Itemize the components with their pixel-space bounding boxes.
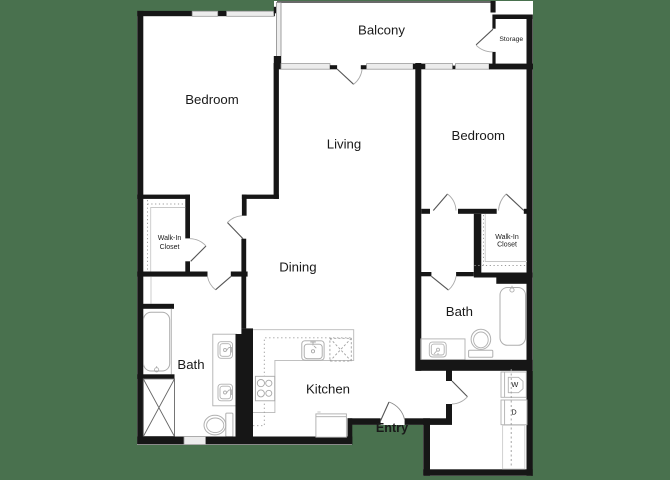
svg-text:Closet: Closet [497,241,517,248]
svg-text:Bath: Bath [177,357,204,372]
svg-text:Dining: Dining [279,260,316,275]
svg-text:Closet: Closet [160,244,180,251]
svg-text:Kitchen: Kitchen [306,382,350,397]
svg-text:Entry: Entry [376,421,408,435]
svg-text:Storage: Storage [499,36,523,43]
svg-text:Walk-In: Walk-In [495,234,519,241]
svg-text:D: D [511,407,516,416]
svg-text:Walk-In: Walk-In [158,235,182,242]
svg-text:Bedroom: Bedroom [452,128,506,143]
svg-text:W: W [511,380,518,389]
svg-text:Living: Living [327,137,361,152]
svg-text:Bath: Bath [446,304,473,319]
svg-text:Balcony: Balcony [358,23,405,38]
svg-text:Bedroom: Bedroom [185,92,239,107]
